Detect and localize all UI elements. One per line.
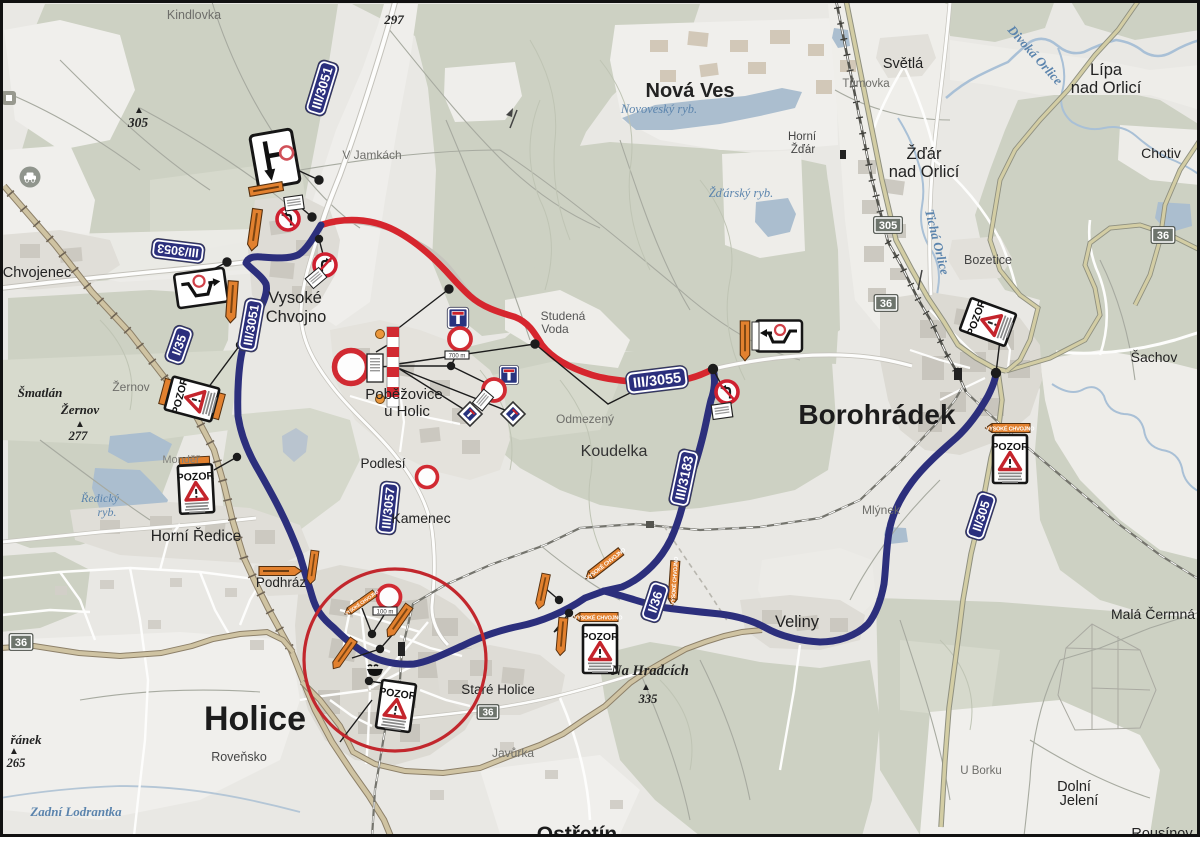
- svg-text:Holice: Holice: [204, 700, 306, 738]
- svg-text:Studená: Studená: [541, 309, 586, 323]
- svg-text:Chvojenec: Chvojenec: [3, 265, 72, 281]
- svg-text:100 m: 100 m: [377, 609, 394, 615]
- svg-text:Horní: Horní: [788, 131, 817, 143]
- svg-text:297: 297: [383, 12, 404, 27]
- svg-text:Javůrka: Javůrka: [492, 746, 534, 760]
- svg-text:Tůmovka: Tůmovka: [842, 78, 890, 90]
- svg-text:Chotiv: Chotiv: [1141, 145, 1181, 161]
- svg-text:Chvojno: Chvojno: [266, 308, 327, 326]
- svg-text:V Jamkách: V Jamkách: [342, 148, 401, 162]
- svg-text:36: 36: [15, 637, 27, 649]
- svg-text:277: 277: [68, 429, 89, 443]
- svg-text:Šmatlán: Šmatlán: [18, 385, 63, 400]
- svg-text:36: 36: [1157, 230, 1169, 242]
- svg-text:Kindlovka: Kindlovka: [167, 8, 221, 22]
- svg-text:Borohrádek: Borohrádek: [798, 399, 956, 430]
- svg-text:řánek: řánek: [10, 732, 42, 747]
- svg-text:nad Orlicí: nad Orlicí: [1071, 79, 1142, 97]
- svg-text:Žďárský ryb.: Žďárský ryb.: [709, 186, 774, 200]
- svg-text:Monděř: Monděř: [162, 454, 200, 466]
- svg-text:Šachov: Šachov: [1131, 349, 1178, 365]
- svg-text:Kamenec: Kamenec: [391, 510, 450, 526]
- svg-text:Žďár: Žďár: [791, 143, 815, 156]
- svg-text:Jelení: Jelení: [1060, 793, 1099, 809]
- svg-text:u Holic: u Holic: [384, 403, 430, 420]
- svg-text:Mlýnek: Mlýnek: [862, 503, 901, 517]
- svg-text:335: 335: [638, 692, 658, 706]
- svg-text:Novoveský ryb.: Novoveský ryb.: [620, 102, 697, 116]
- svg-text:Žďár: Žďár: [907, 144, 942, 163]
- svg-text:36: 36: [482, 708, 494, 719]
- svg-text:700 m: 700 m: [449, 353, 466, 359]
- svg-text:Na Hradcích: Na Hradcích: [610, 663, 689, 679]
- svg-text:265: 265: [6, 756, 26, 770]
- svg-text:Žernov: Žernov: [60, 402, 100, 417]
- svg-text:305: 305: [879, 220, 897, 232]
- svg-text:Staré Holice: Staré Holice: [461, 682, 535, 697]
- svg-text:Ředický: Ředický: [80, 491, 120, 505]
- svg-text:Roveňsko: Roveňsko: [211, 750, 267, 764]
- svg-text:Bozetice: Bozetice: [964, 253, 1012, 267]
- svg-text:Lípa: Lípa: [1090, 61, 1123, 79]
- svg-text:Žernov: Žernov: [112, 379, 149, 394]
- svg-text:Veliny: Veliny: [775, 613, 820, 631]
- svg-text:Zadní Lodrantka: Zadní Lodrantka: [29, 804, 122, 819]
- svg-text:nad Orlicí: nad Orlicí: [889, 163, 960, 181]
- svg-text:Voda: Voda: [541, 322, 569, 336]
- svg-text:Podlesí: Podlesí: [360, 456, 405, 471]
- svg-text:ryb.: ryb.: [98, 505, 117, 519]
- svg-text:Malá Čermná: Malá Čermná: [1111, 606, 1195, 622]
- svg-text:Koudelka: Koudelka: [581, 443, 648, 460]
- svg-text:305: 305: [127, 115, 149, 130]
- svg-text:36: 36: [880, 298, 892, 310]
- svg-text:Horní Ředice: Horní Ředice: [151, 528, 241, 545]
- svg-text:Světlá: Světlá: [883, 56, 924, 72]
- svg-text:Nová Ves: Nová Ves: [646, 80, 735, 102]
- svg-text:Poběžovice: Poběžovice: [365, 386, 443, 403]
- svg-text:Vysoké: Vysoké: [268, 289, 322, 307]
- svg-text:Podhráz: Podhráz: [256, 575, 307, 590]
- svg-text:Odmezený: Odmezený: [556, 412, 614, 426]
- svg-text:U Borku: U Borku: [960, 765, 1002, 777]
